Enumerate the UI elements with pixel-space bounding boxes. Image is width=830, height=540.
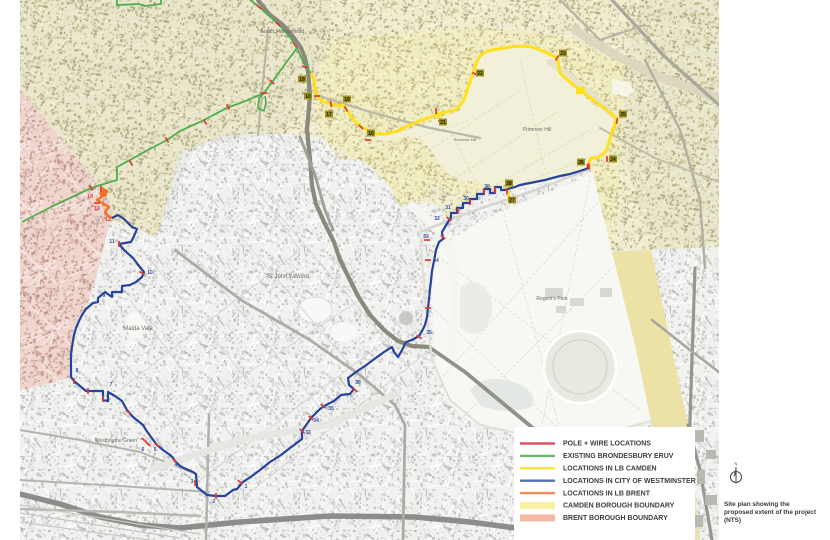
svg-text:5: 5 <box>154 447 157 453</box>
svg-text:33: 33 <box>423 234 429 240</box>
svg-text:4: 4 <box>175 462 178 468</box>
svg-text:23: 23 <box>560 51 566 57</box>
svg-text:Westbourne Green: Westbourne Green <box>95 438 137 444</box>
svg-text:Site plan showing the: Site plan showing the <box>724 501 790 508</box>
svg-text:35: 35 <box>426 330 432 336</box>
svg-text:9: 9 <box>103 293 106 299</box>
svg-text:10: 10 <box>305 94 311 100</box>
svg-text:CAMDEN BOROUGH BOUNDARY: CAMDEN BOROUGH BOUNDARY <box>563 503 675 510</box>
svg-text:2: 2 <box>213 499 216 505</box>
svg-text:26: 26 <box>578 160 584 166</box>
svg-text:31: 31 <box>445 205 451 211</box>
svg-text:Regent's Park: Regent's Park <box>536 296 568 302</box>
svg-text:BRENT BOROUGH BOUNDARY: BRENT BOROUGH BOUNDARY <box>563 515 668 522</box>
svg-text:34: 34 <box>313 418 319 424</box>
svg-text:Primrose Hill: Primrose Hill <box>523 127 551 133</box>
svg-text:N: N <box>735 461 738 466</box>
svg-text:11: 11 <box>109 239 115 245</box>
svg-text:36: 36 <box>355 380 361 386</box>
svg-text:LOCATIONS IN CITY OF WESTMINST: LOCATIONS IN CITY OF WESTMINSTER <box>563 478 696 485</box>
svg-text:30: 30 <box>484 184 490 190</box>
svg-text:St John's Wood: St John's Wood <box>267 274 309 280</box>
svg-text:21: 21 <box>440 120 446 126</box>
svg-text:LOCATIONS IN LB BRENT: LOCATIONS IN LB BRENT <box>563 490 651 497</box>
svg-text:33: 33 <box>305 430 311 436</box>
svg-text:10: 10 <box>147 270 153 276</box>
svg-text:30: 30 <box>463 196 469 202</box>
svg-text:EXISTING BRONDESBURY ERUV: EXISTING BRONDESBURY ERUV <box>563 453 674 460</box>
svg-text:34: 34 <box>433 258 439 264</box>
svg-text:(NTS): (NTS) <box>724 517 741 524</box>
svg-text:18: 18 <box>344 97 350 103</box>
svg-text:16: 16 <box>368 131 374 137</box>
svg-text:25: 25 <box>620 112 626 118</box>
svg-text:14: 14 <box>87 194 94 200</box>
svg-text:32: 32 <box>434 216 440 222</box>
svg-text:POLE + WIRE LOCATIONS: POLE + WIRE LOCATIONS <box>563 441 651 448</box>
svg-text:13: 13 <box>94 206 100 212</box>
svg-text:28: 28 <box>506 181 512 187</box>
svg-text:35: 35 <box>328 406 334 412</box>
svg-text:12: 12 <box>105 217 111 223</box>
svg-text:19: 19 <box>299 77 305 83</box>
svg-text:6: 6 <box>142 447 145 453</box>
svg-text:proposed extent of the project: proposed extent of the project <box>724 509 817 516</box>
svg-text:South Hampstead: South Hampstead <box>260 29 304 35</box>
svg-text:7: 7 <box>110 382 113 388</box>
svg-text:24: 24 <box>610 157 616 163</box>
svg-text:Primrose Hill: Primrose Hill <box>454 137 477 142</box>
svg-text:1: 1 <box>245 484 248 490</box>
svg-text:17: 17 <box>326 112 332 118</box>
svg-text:3: 3 <box>191 479 194 485</box>
svg-text:LOCATIONS IN LB CAMDEN: LOCATIONS IN LB CAMDEN <box>563 466 657 473</box>
svg-text:27: 27 <box>509 198 515 204</box>
svg-text:22: 22 <box>477 71 483 77</box>
svg-text:8: 8 <box>76 368 79 374</box>
svg-text:Maida Vale: Maida Vale <box>123 326 153 332</box>
